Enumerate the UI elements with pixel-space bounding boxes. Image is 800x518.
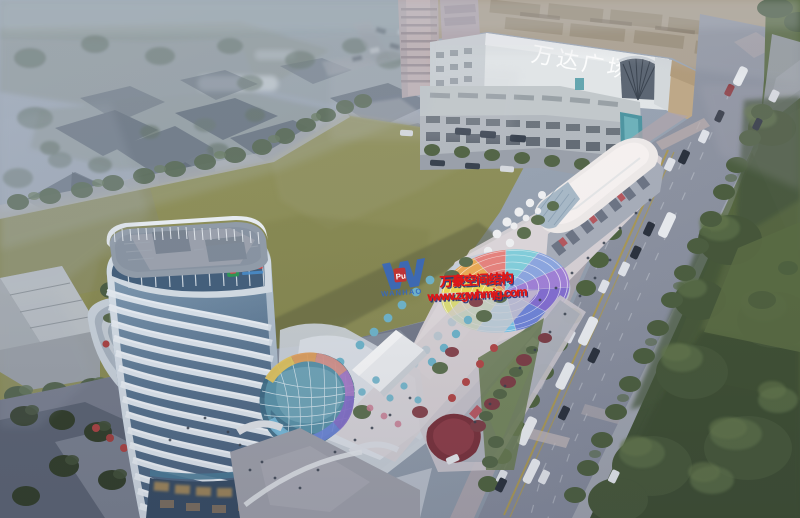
svg-text:Pu: Pu: [395, 271, 406, 281]
